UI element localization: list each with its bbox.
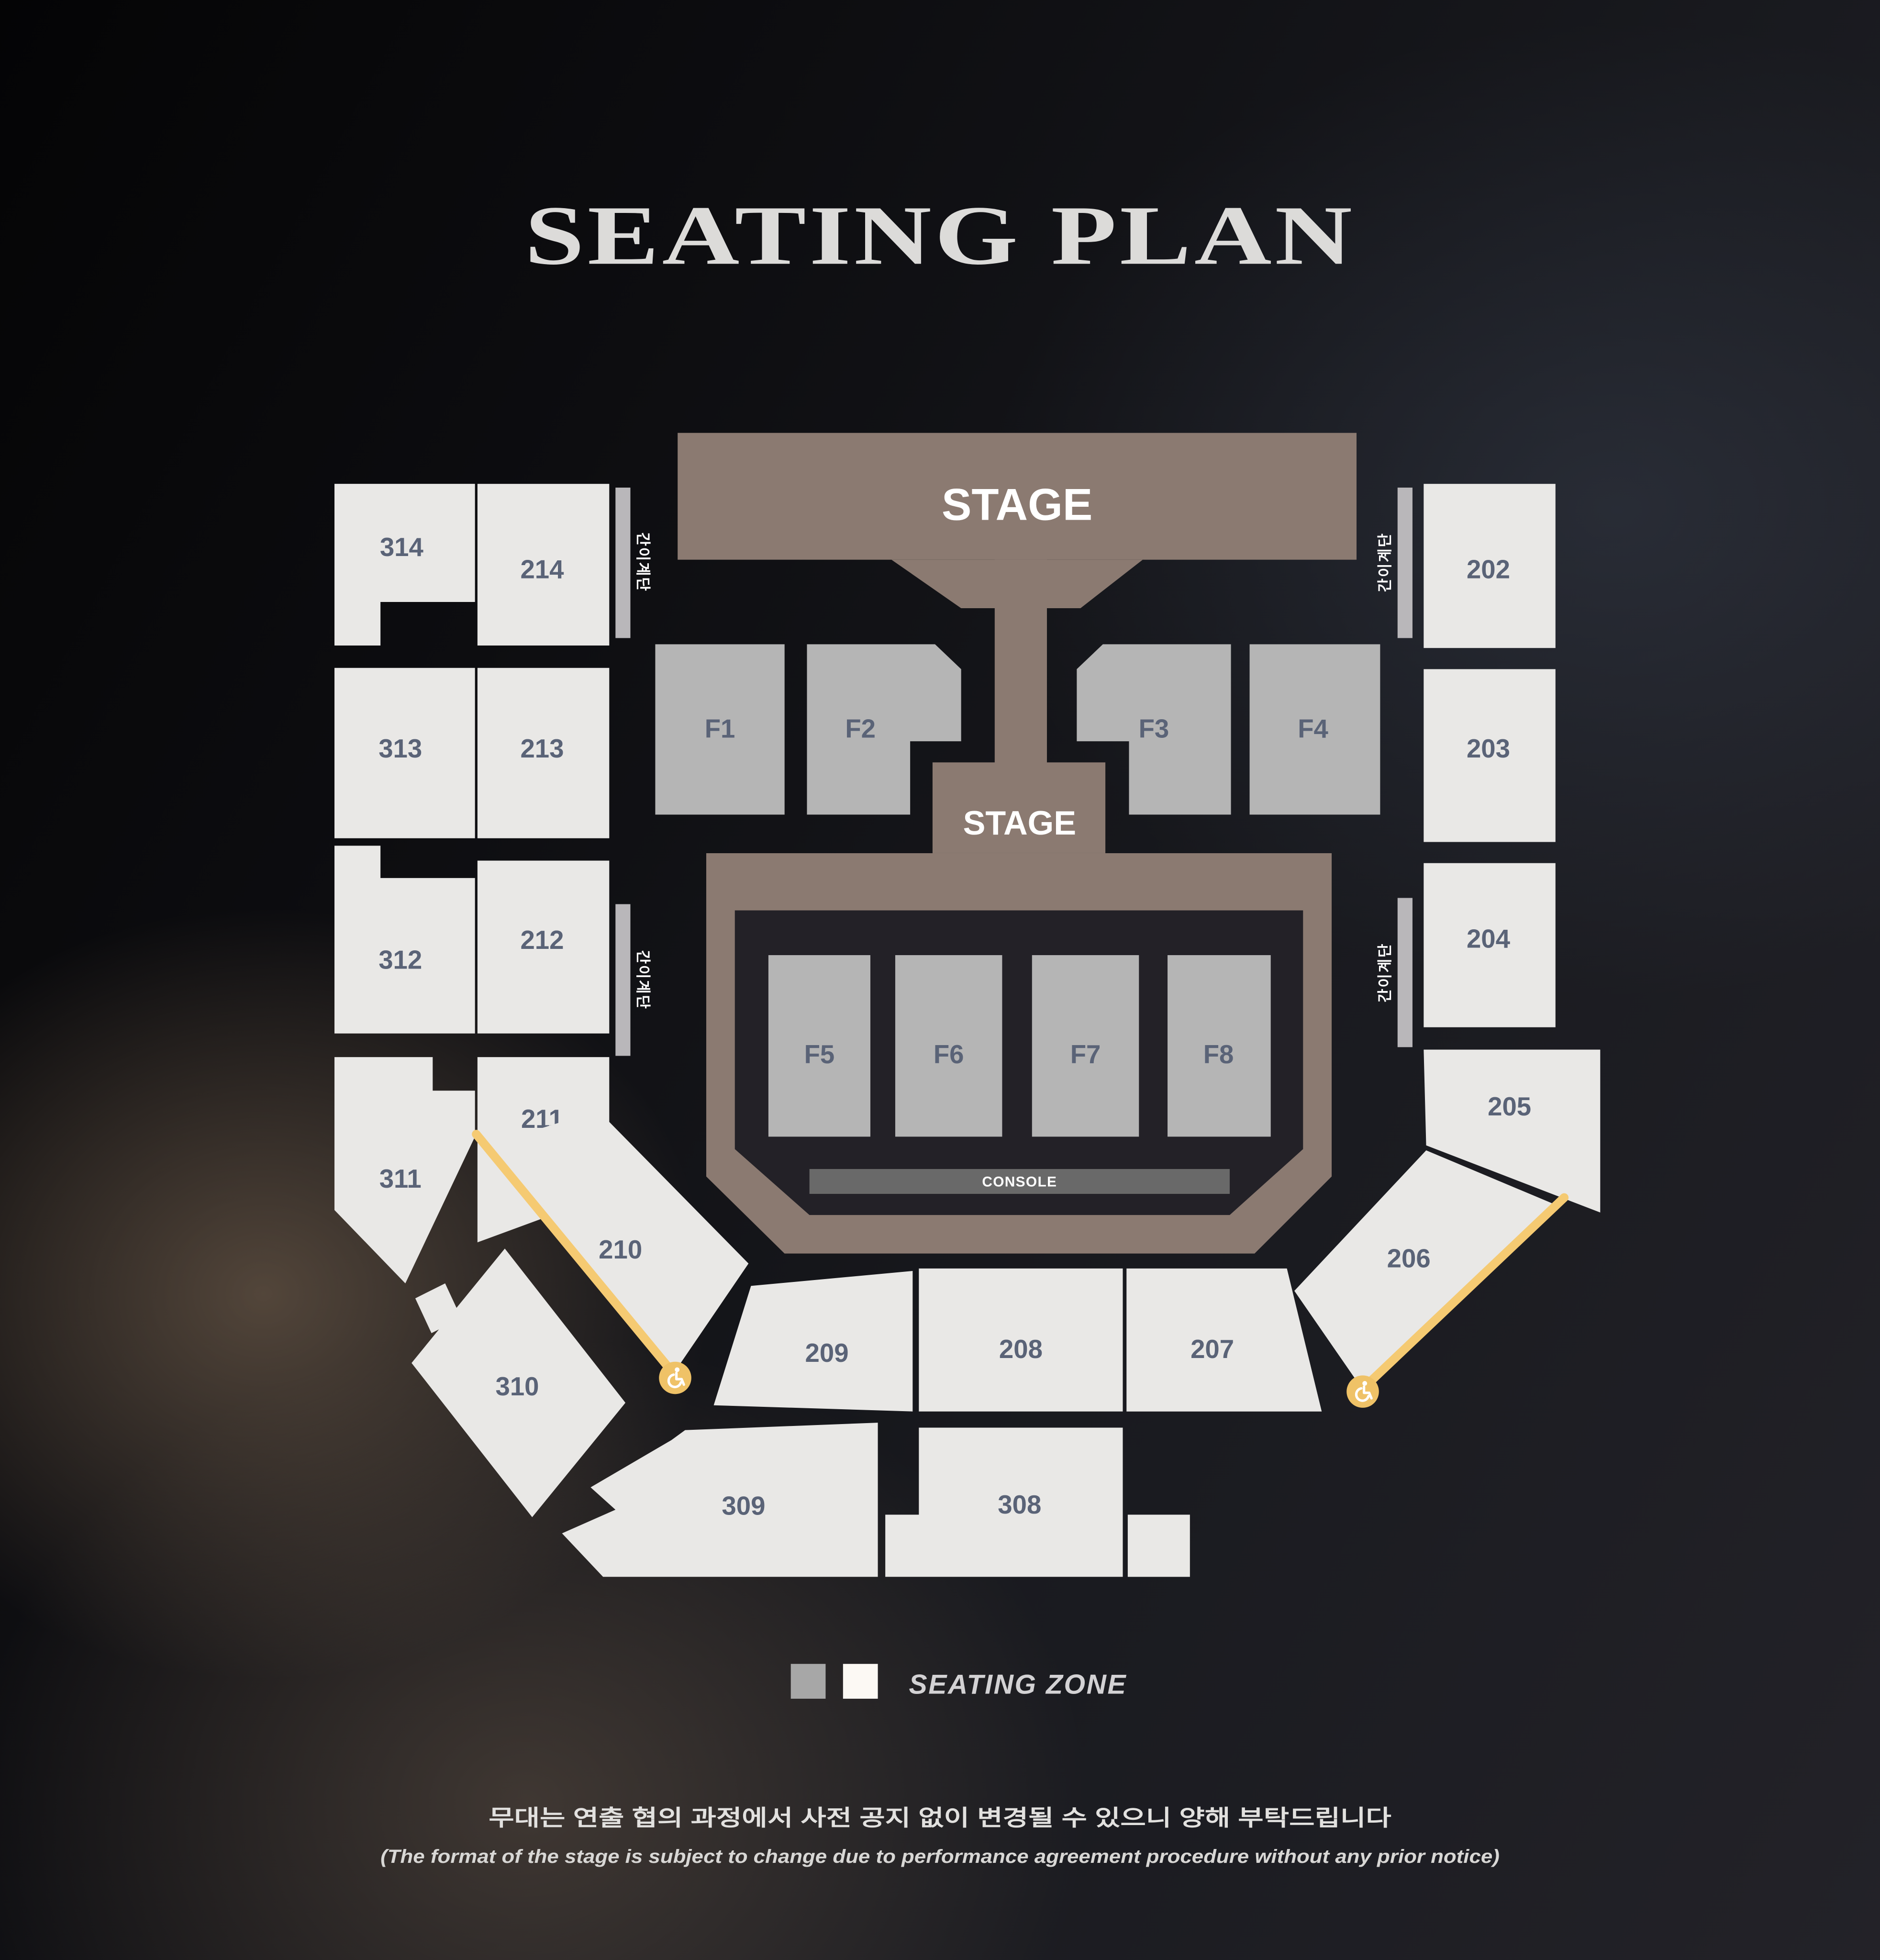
seating-map: SEATING PLAN STAGE STAGE CONSOLE F1 F2 F… [0,0,1880,1960]
console-label: CONSOLE [982,1174,1057,1190]
section-213[interactable]: 213 [478,668,609,838]
section-204[interactable]: 204 [1424,863,1555,1027]
section-label: 213 [520,734,564,763]
section-F4[interactable]: F4 [1250,644,1380,814]
section-label: F5 [804,1040,835,1069]
stair-label-left-mid: 간이계단 [634,950,651,1010]
seating-plan-page: SEATING PLAN STAGE STAGE CONSOLE F1 F2 F… [0,0,1880,1960]
section-314[interactable]: 314 [334,484,475,646]
page-title: SEATING PLAN [525,189,1356,282]
section-label: 308 [998,1490,1041,1519]
stage-runway [995,560,1047,771]
section-label: F6 [934,1040,964,1069]
section-label: F1 [705,714,735,743]
section-label: 203 [1467,734,1510,763]
section-shape[interactable] [334,846,475,1033]
footer-notice-korean: 무대는 연출 협의 과정에서 사전 공지 없이 변경될 수 있으니 양해 부탁드… [489,1805,1391,1830]
thrust-stage-label: STAGE [963,804,1076,842]
section-209[interactable]: 209 [714,1271,913,1412]
section-label: 208 [999,1335,1043,1364]
section-212[interactable]: 212 [478,861,609,1034]
section-label: 313 [378,734,422,763]
section-313[interactable]: 313 [334,668,475,838]
section-shape[interactable] [334,484,475,646]
section-308[interactable]: 308 [885,1427,1123,1577]
stair-label-left-top: 간이계단 [634,532,651,592]
section-label: 214 [520,555,564,584]
section-label: 202 [1467,555,1510,584]
section-206[interactable]: 206 [1294,1150,1559,1392]
section-label: F8 [1203,1040,1234,1069]
section-label: 204 [1467,924,1511,953]
legend-seating-swatch [843,1664,878,1699]
section-label: F3 [1139,714,1169,743]
section-203[interactable]: 203 [1424,669,1555,842]
section-214[interactable]: 214 [478,484,609,646]
section-208[interactable]: 208 [919,1269,1123,1412]
main-stage-label: STAGE [942,479,1092,530]
stair-label-right-mid: 간이계단 [1377,943,1393,1002]
stair-bar-right-mid [1398,898,1413,1047]
section-label: 311 [379,1164,422,1193]
stair-bar-left-top [615,488,630,638]
section-309[interactable]: 309 [562,1423,878,1577]
section-label: 309 [722,1491,765,1520]
stair-label-right-top: 간이계단 [1377,532,1393,592]
section-label: F7 [1070,1040,1101,1069]
section-label: F4 [1298,714,1328,743]
wheelchair-icon-right [1346,1375,1379,1408]
section-shape[interactable] [562,1423,878,1577]
section-label: 207 [1190,1335,1234,1364]
stair-bar-right-top [1398,488,1413,638]
section-F1[interactable]: F1 [655,644,784,814]
legend-label: SEATING ZONE [909,1670,1127,1700]
section-F7[interactable]: F7 [1032,955,1139,1136]
section-label: 206 [1387,1244,1431,1273]
section-label: F2 [845,714,876,743]
section-label: 209 [805,1338,849,1368]
section-F6[interactable]: F6 [895,955,1002,1136]
section-F8[interactable]: F8 [1168,955,1271,1136]
section-label: 310 [495,1372,539,1401]
section-label: 212 [520,925,564,955]
section-label: 312 [378,946,422,975]
section-312[interactable]: 312 [334,846,475,1033]
footer: 무대는 연출 협의 과정에서 사전 공지 없이 변경될 수 있으니 양해 부탁드… [380,1805,1500,1867]
right-sections: 202 203 204 205 206 [1294,484,1600,1392]
section-207[interactable]: 207 [1126,1269,1322,1412]
section-label: 205 [1488,1092,1531,1121]
legend: SEATING ZONE [791,1664,1127,1700]
section-F5[interactable]: F5 [768,955,870,1136]
wheelchair-icon-left [659,1362,691,1394]
section-label: 210 [599,1235,642,1264]
legend-floor-swatch [791,1664,826,1699]
footer-notice-english: (The format of the stage is subject to c… [380,1846,1500,1867]
section-label: 314 [380,533,424,562]
section-311[interactable]: 311 [334,1057,475,1283]
stair-bar-left-mid [615,904,630,1056]
section-202[interactable]: 202 [1424,484,1555,648]
section-fragment [1128,1515,1190,1577]
